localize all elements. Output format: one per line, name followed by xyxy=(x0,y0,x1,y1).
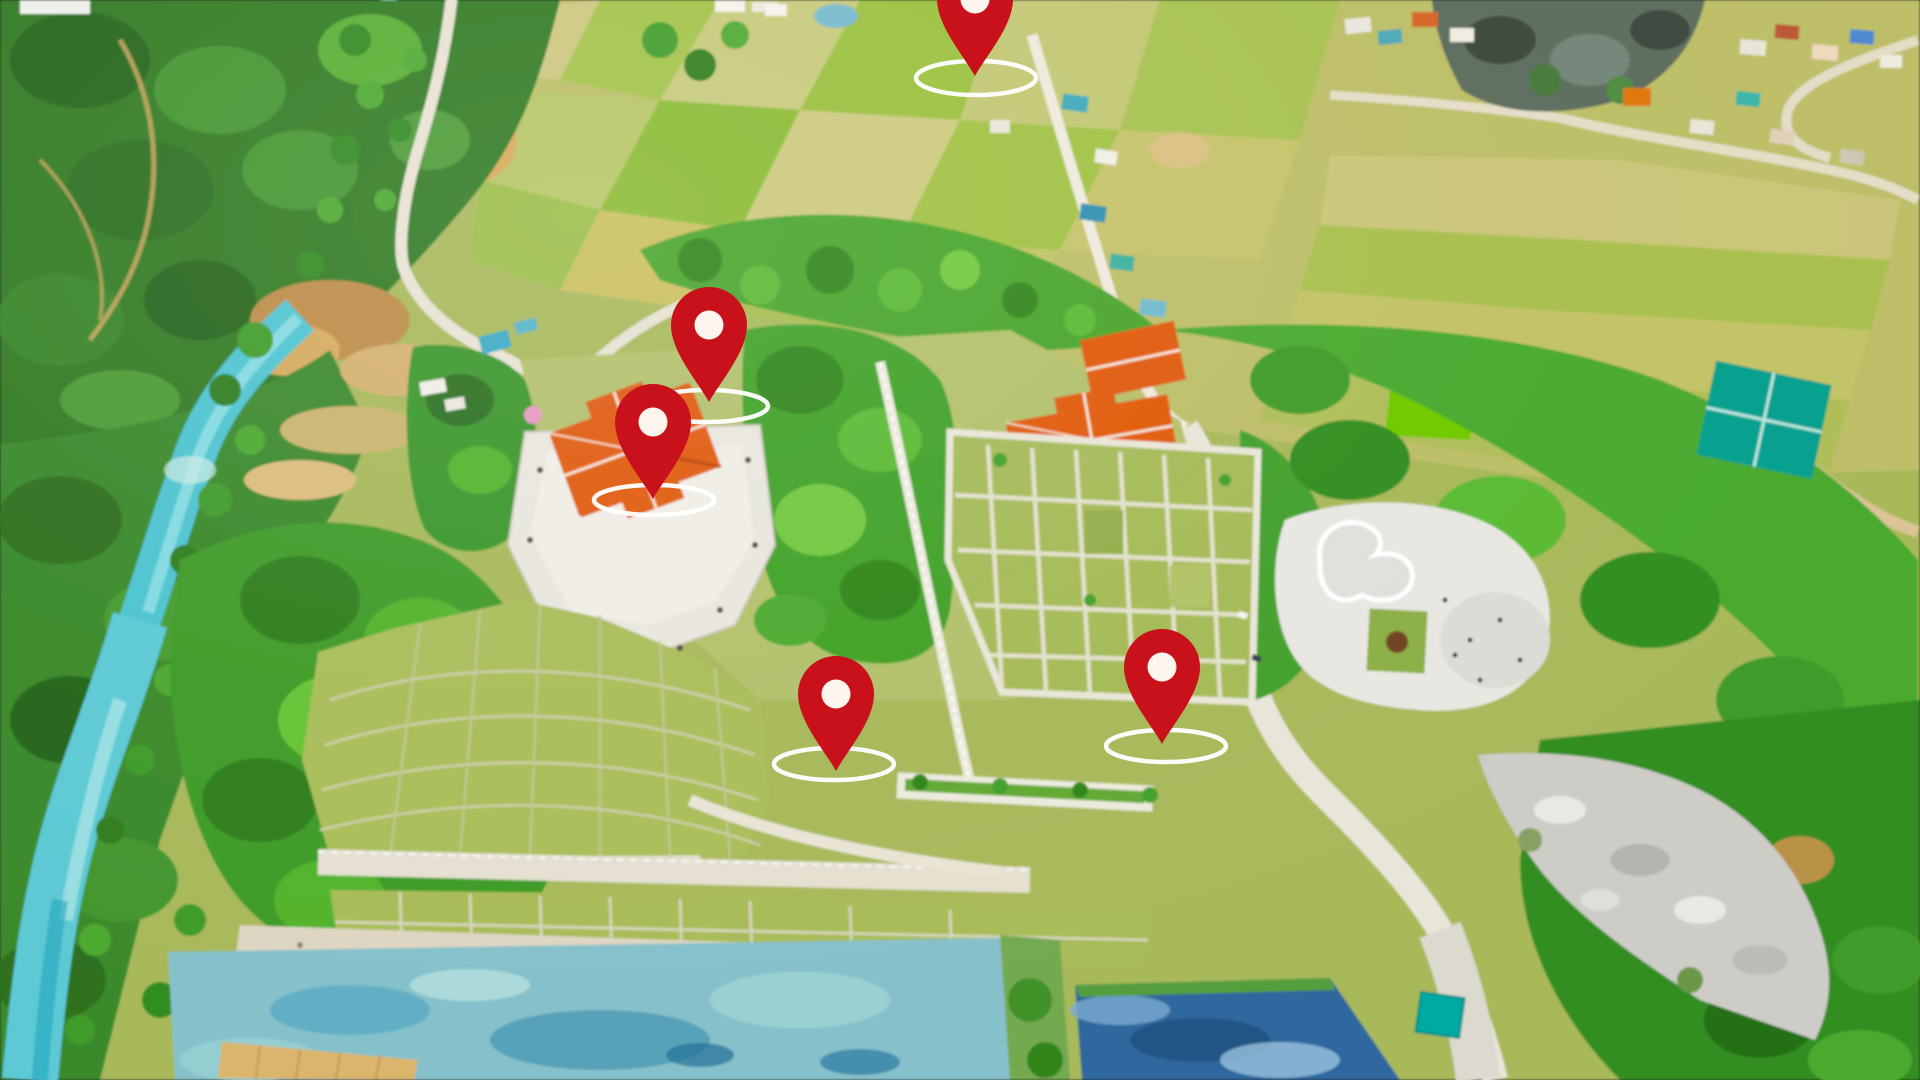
scene-canvas xyxy=(0,0,1920,1080)
background-scene xyxy=(0,0,1920,1080)
light-haze xyxy=(0,0,1920,1080)
aerial-map-view xyxy=(0,0,1920,1080)
